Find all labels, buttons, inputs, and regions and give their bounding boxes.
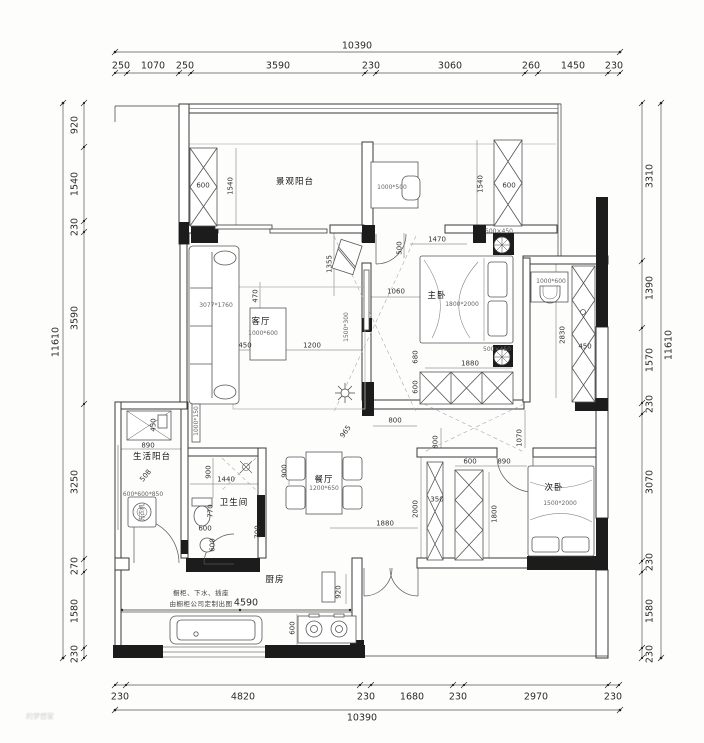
dim-label: 3590	[70, 306, 80, 330]
dim-label: 230	[357, 692, 375, 702]
dim-label: 1470	[428, 237, 446, 244]
dim-label: 920	[336, 585, 343, 598]
hall-cabinet	[427, 462, 443, 560]
dim-label: 1570	[645, 348, 655, 372]
tv	[364, 270, 369, 330]
dim-label: 600	[463, 459, 476, 466]
room-label-master-bedroom: 主卧	[427, 292, 446, 301]
stove	[298, 614, 356, 643]
dim-label: 700	[255, 525, 262, 538]
dim-label: 230	[605, 61, 623, 71]
dim-label: 450	[578, 344, 591, 351]
dim-label: 600	[196, 183, 209, 190]
dim-label: 270	[70, 557, 80, 575]
dim-label: 1440	[217, 477, 235, 484]
corner-plant-1	[494, 237, 510, 253]
dim-label: 900	[282, 464, 289, 477]
room-label-dining: 餐厅	[314, 476, 333, 485]
second-bed	[528, 466, 594, 556]
sofa	[189, 246, 239, 404]
watermark: 的梦想家	[26, 714, 54, 721]
dim-label: 600	[502, 183, 515, 190]
ensuite-cabinet	[572, 266, 595, 402]
dim-top-total: 10390	[342, 41, 372, 51]
floor-plan-canvas: 1039025010702503590230306026014502302304…	[0, 0, 704, 743]
furniture-size-label: 1000*500	[377, 185, 407, 191]
dim-label: 450	[238, 343, 251, 350]
dim-label: 800	[388, 418, 401, 425]
dim-label: 1580	[70, 599, 80, 623]
washing-machine-label: 洗衣机	[140, 504, 146, 522]
dim-label: 890	[497, 459, 510, 466]
dim-label: 600	[210, 538, 217, 551]
dim-label: 2970	[524, 692, 548, 702]
room-label-service-balcony: 生活阳台	[133, 453, 171, 462]
dim-label: 890	[141, 443, 154, 450]
entry-door-leaf-arc	[364, 568, 392, 596]
dim-label: 230	[604, 692, 622, 702]
furniture-size-label: 500×450	[483, 347, 511, 353]
dim-label: 1540	[478, 175, 485, 193]
dim-label: 800	[433, 435, 440, 448]
furniture-size-label: 600*600*850	[123, 492, 163, 498]
decor-panel	[332, 239, 362, 274]
room-label-view-balcony: 景观阳台	[276, 178, 314, 187]
dim-label: 600	[413, 380, 420, 393]
floor-plan-drawing	[0, 0, 704, 743]
dim-label: 450	[151, 418, 158, 431]
dim-label: 230	[362, 61, 380, 71]
dim-label: 900	[206, 465, 213, 478]
dim-label: 1070	[141, 61, 165, 71]
sliding-door	[215, 225, 327, 233]
kitchen-counter-dim: 4590	[234, 598, 258, 608]
dim-label: 600	[290, 621, 297, 634]
dim-label: 680	[413, 350, 420, 363]
dim-label: 3310	[645, 164, 655, 188]
kitchen-note-1: 橱柜、下水、插座	[173, 590, 229, 597]
furniture-size-label: 1500*300	[344, 312, 350, 342]
dim-label: 260	[522, 61, 540, 71]
second-wardrobe	[455, 470, 483, 560]
dim-bottom-total: 10390	[347, 713, 377, 723]
dim-label: 920	[70, 116, 80, 134]
room-label-living: 客厅	[251, 318, 270, 327]
hall-plant	[335, 383, 355, 403]
dim-label: 4820	[231, 692, 255, 702]
shower-symbol	[240, 461, 252, 473]
dim-label: 600	[198, 526, 211, 533]
dim-label: 1390	[645, 276, 655, 300]
dim-label: 230	[70, 218, 80, 236]
dim-label: 1200	[303, 343, 321, 350]
furniture-size-label: 1000*150	[194, 406, 200, 436]
room-label-bathroom: 卫生间	[220, 499, 249, 508]
furniture-size-label: 1500*2000	[543, 501, 577, 507]
dim-label: 1880	[461, 361, 479, 368]
washbasin-counter	[531, 272, 568, 303]
dim-label: 470	[253, 289, 260, 302]
furniture-size-label: 1000*600	[536, 279, 566, 285]
furniture-size-label: 500×450	[485, 229, 513, 235]
dim-label: 1540	[228, 177, 235, 195]
dim-right-total: 11610	[664, 330, 674, 360]
dim-label: 3060	[438, 61, 462, 71]
furniture-size-label: 3077*1760	[199, 303, 233, 309]
dim-label: 1800	[492, 505, 499, 523]
kitchen-note-2: 由橱柜公司定制出图	[170, 601, 233, 608]
room-label-second-bedroom: 次卧	[544, 484, 563, 493]
fridge	[322, 572, 335, 602]
dim-label: 1580	[645, 599, 655, 623]
dim-label: 1060	[387, 289, 405, 296]
dim-label: 230	[111, 692, 129, 702]
dim-left-total: 11610	[51, 327, 61, 357]
dim-label: 3590	[266, 61, 290, 71]
dim-label: 1680	[400, 692, 424, 702]
furniture-size-label: 1000*600	[248, 331, 278, 337]
dim-label: 250	[112, 61, 130, 71]
dim-label: 2000	[413, 500, 420, 518]
dim-label: 770	[208, 504, 215, 517]
dim-label: 2830	[560, 326, 567, 344]
dim-label: 500	[397, 241, 404, 254]
dim-label: 3070	[645, 470, 655, 494]
dim-label: 230	[70, 645, 80, 663]
dim-label: 1540	[70, 172, 80, 196]
dim-label: 1450	[561, 61, 585, 71]
dim-label: 230	[645, 645, 655, 663]
dim-label: 1880	[376, 521, 394, 528]
master-wardrobe	[420, 372, 513, 404]
furniture-size-label: 1800*2000	[445, 302, 479, 308]
room-label-kitchen: 厨房	[265, 576, 284, 585]
dim-label: 3250	[70, 470, 80, 494]
furniture-size-label: 1200*650	[309, 486, 339, 492]
dim-label: 350	[430, 497, 443, 504]
dim-label: 230	[645, 553, 655, 571]
dim-label: 230	[645, 395, 655, 413]
dim-label: 230	[449, 692, 467, 702]
dim-label: 1070	[517, 429, 524, 447]
dim-label: 1355	[327, 255, 334, 273]
dim-label: 250	[176, 61, 194, 71]
